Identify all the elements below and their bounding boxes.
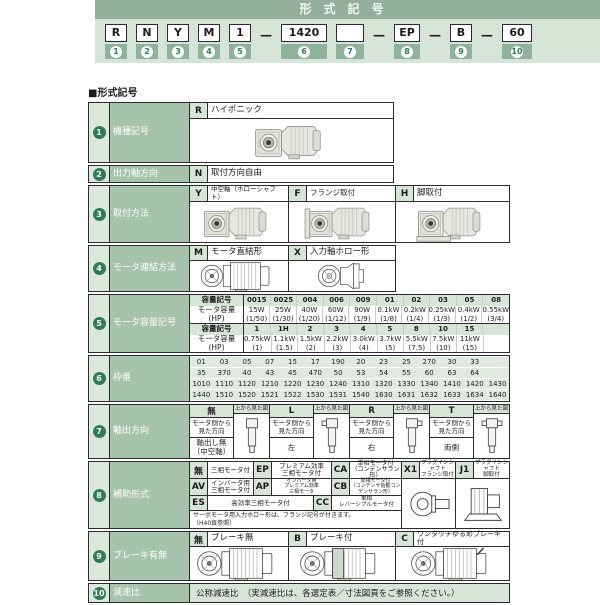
row-number: 5 — [89, 295, 110, 352]
row-reduction-ratio: 10 減速比 公称減速比 （実減速比は、各選定表／寸法図頁をご参照ください。） — [88, 583, 510, 603]
list-cell: 5.5kW (7.5) — [404, 335, 431, 352]
desc-cell: 高効率三相モータ付 — [208, 496, 313, 510]
list-cell — [486, 368, 509, 378]
code-number-badge: 3 — [167, 44, 189, 59]
list-cell: 25W (1/30) — [270, 306, 296, 323]
capacity-header: モータ容量 (HP) — [190, 306, 244, 323]
list-cell: 1510 — [213, 390, 236, 400]
capacity-value-row-1: モータ容量 (HP) 15W (1/50)25W (1/30)40W (1/20… — [190, 306, 509, 323]
code-number-badge: 4 — [198, 44, 220, 59]
code-number-badge: 10 — [502, 44, 532, 59]
code-cell: M — [190, 246, 208, 260]
capacity-symbol-row-1: 容量記号 001500250040060090102030508 — [190, 295, 509, 306]
view-label: モータ側から 見た方向 — [270, 418, 313, 438]
direction-label: 右 — [350, 438, 393, 458]
list-cell: 03 — [213, 357, 236, 367]
list-cell: 11kW (15) — [457, 335, 484, 352]
code-cell: 無 — [190, 405, 233, 418]
row-label: ブレーキ有無 — [110, 532, 190, 580]
code-cell: Y — [190, 186, 208, 201]
list-cell: 4 — [350, 324, 377, 335]
desc-cell: 脚取付 — [414, 186, 509, 201]
frame-row-4: 1440151015201521152215301531154016301631… — [190, 390, 509, 400]
desc-cell: プレミアム効率 三相モータ付 — [272, 462, 331, 478]
code-segment-8: EP 8 — [394, 24, 420, 59]
row-number: 3 — [89, 186, 110, 242]
row-number: 1 — [89, 103, 110, 162]
list-cell: 02 — [404, 295, 431, 306]
list-cell: 1520 — [236, 390, 259, 400]
list-cell: 3.7kW (5) — [378, 335, 405, 352]
connection-option-input-hollow: X 入力軸ホロー形 — [289, 246, 395, 291]
ratio-desc-cell: 公称減速比 （実減速比は、各選定表／寸法図頁をご参照ください。） — [190, 584, 509, 602]
row-motor-connection: 4 モータ連結方法 M モータ直結形 X 入力軸ホロー形 — [88, 245, 396, 292]
list-cell: 1 — [244, 324, 271, 335]
list-cell: 25 — [395, 357, 418, 367]
direction-label: 左 — [270, 438, 313, 458]
mounting-option-flange: F フランジ取付 — [289, 186, 396, 242]
desc-cell: 単相モータ付 （コンデンサラン形） — [350, 462, 401, 478]
list-cell: 1H — [271, 324, 298, 335]
row-label: 機種記号 — [110, 103, 190, 162]
list-cell: 1640 — [486, 390, 509, 400]
list-cell: 1420 — [463, 379, 486, 389]
row-label: 軸出方向 — [110, 405, 190, 458]
list-cell: 0.2kW (1/4) — [402, 306, 428, 323]
desc-cell: プラグインシャフト フランジ取付 — [420, 462, 455, 478]
code-cell: EP — [254, 462, 272, 478]
list-cell: 1632 — [418, 390, 441, 400]
list-cell: 1540 — [349, 390, 372, 400]
list-cell: 1120 — [236, 379, 259, 389]
list-cell: 15 — [457, 324, 484, 335]
desc-cell: インバータ用 プレミアム効率 三相モータ — [272, 479, 331, 495]
list-cell: 3.0kW (4) — [351, 335, 378, 352]
list-cell: 0.25kW (1/3) — [429, 306, 457, 323]
brake-motor-diagram — [299, 547, 385, 580]
code-cell: L — [270, 405, 313, 418]
code-number-badge: 1 — [105, 44, 127, 59]
list-cell: 1521 — [258, 390, 281, 400]
brake-option-with-brake: B ブレーキ付 — [289, 532, 396, 580]
desc-cell: ブレーキ付 — [307, 532, 395, 546]
brake-option-none: 無 ブレーキ無 — [190, 532, 289, 580]
plug-in-shaft-flange-diagram — [402, 479, 456, 528]
shaft-fig-right: 上から見た図 — [394, 405, 430, 458]
list-cell — [484, 335, 510, 352]
code-cell: CB — [332, 479, 350, 495]
desc-cell: 中空軸（ホローシャフト） — [208, 186, 288, 201]
row-frame-number: 6 枠番 0103050715171902023252703033 353704… — [88, 355, 510, 402]
desc-cell: ワンタッチゆるめブレーキ付 — [414, 532, 509, 546]
code-segment-6: 1420 6 — [281, 24, 327, 59]
code-number-badge: 9 — [450, 44, 472, 59]
list-cell: 370 — [213, 368, 236, 378]
code-number-badge: 8 — [394, 44, 420, 59]
list-cell: 55 — [395, 368, 418, 378]
view-label: モータ側から 見た方向 — [190, 418, 233, 438]
code-segment-3: Y 3 — [167, 24, 189, 59]
list-cell: 1410 — [441, 379, 464, 389]
code-cell: R — [350, 405, 393, 418]
frame-row-3: 1010111011201210122012301240131013201330… — [190, 379, 509, 389]
list-cell: 1430 — [486, 379, 509, 389]
row-motor-capacity: 5 モータ容量記号 容量記号 0015002500400600901020305… — [88, 294, 510, 353]
row-number: 7 — [89, 405, 110, 458]
list-cell: 004 — [297, 295, 324, 306]
capacity-symbol-row-2: 容量記号 11H234581015 — [190, 323, 509, 335]
desc-cell: 単相 レバーシブルモータ付 — [332, 496, 401, 510]
list-cell: 1340 — [418, 379, 441, 389]
frame-row-1: 0103050715171902023252703033 — [190, 357, 509, 367]
code-cell: B — [289, 532, 307, 546]
code-number-badge: 7 — [336, 44, 364, 59]
list-cell: 05 — [236, 357, 259, 367]
list-cell: 009 — [350, 295, 377, 306]
list-cell: 1522 — [281, 390, 304, 400]
list-cell: 1220 — [281, 379, 304, 389]
list-cell — [486, 357, 509, 367]
list-cell: 01 — [377, 295, 404, 306]
code-box-frame: 1420 — [281, 24, 327, 42]
list-cell: 1310 — [349, 379, 372, 389]
dash-separator: — — [429, 28, 441, 42]
list-cell: 15 — [281, 357, 304, 367]
list-cell: 270 — [418, 357, 441, 367]
code-number-badge: 2 — [136, 44, 158, 59]
list-cell: 1530 — [304, 390, 327, 400]
list-cell: 03 — [430, 295, 457, 306]
list-cell: 0.4kW (1/2) — [456, 306, 482, 323]
page-title: 形式記号 — [95, 0, 600, 19]
list-cell: 30 — [441, 357, 464, 367]
list-cell: 40W (1/20) — [297, 306, 323, 323]
fig-label: 上から見た図 — [314, 405, 349, 414]
list-cell: 60W (1/12) — [323, 306, 349, 323]
code-box-capacity: 1 — [229, 24, 251, 42]
code-segment-4: M 4 — [198, 24, 220, 59]
list-cell: 33 — [463, 357, 486, 367]
list-cell: 1440 — [190, 390, 213, 400]
list-cell: 23 — [372, 357, 395, 367]
desc-cell: 取付方向自由 — [208, 166, 393, 182]
row-label: 枠番 — [110, 356, 190, 401]
list-cell: 1.5kW (2) — [298, 335, 325, 352]
list-cell: 63 — [441, 368, 464, 378]
list-cell: 0025 — [271, 295, 298, 306]
code-cell: AV — [190, 479, 208, 495]
row-label: 減速比 — [110, 584, 190, 602]
list-cell: 1110 — [213, 379, 236, 389]
brake-motor-none-diagram — [196, 547, 282, 580]
shaft-top-view-diagram — [400, 416, 424, 456]
row-shaft-output-direction: 7 軸出方向 無 モータ側から 見た方向 軸出し無 （中空軸） 上から見た図 L… — [88, 404, 510, 459]
connection-option-direct: M モータ直結形 — [190, 246, 289, 291]
code-box-output-dir: N — [136, 24, 158, 42]
list-cell: 0015 — [244, 295, 271, 306]
desc-cell: プラグインシャフト 脚取付 — [474, 462, 509, 478]
code-cell: 無 — [190, 462, 208, 478]
code-cell: J1 — [456, 462, 474, 478]
shaft-fig-none: 上から見た図 — [234, 405, 270, 458]
list-cell: 17 — [304, 357, 327, 367]
list-cell: 43 — [258, 368, 281, 378]
code-box-connection: M — [198, 24, 220, 42]
brake-option-one-touch-release: C ワンタッチゆるめブレーキ付 — [396, 532, 509, 580]
code-cell: X — [289, 246, 307, 260]
desc-cell: 単相モータ付 （コンデンサ始動コンデンサラン形） — [350, 479, 401, 495]
fig-label: 上から見た図 — [394, 405, 429, 414]
code-cell: ES — [190, 496, 208, 510]
list-cell: 45 — [281, 368, 304, 378]
frame-row-2: 3537040434547050535455606364 — [190, 368, 509, 378]
list-cell: 1630 — [372, 390, 395, 400]
list-cell: 1.1kW (1.5) — [272, 335, 299, 352]
dash-separator: — — [481, 28, 493, 42]
code-cell: X1 — [402, 462, 420, 478]
desc-cell: フランジ取付 — [307, 186, 395, 201]
list-cell: 40 — [236, 368, 259, 378]
list-cell: 1320 — [372, 379, 395, 389]
code-cell: AP — [254, 479, 272, 495]
desc-cell: インバータ用 三相モータ付 — [208, 479, 253, 495]
direction-label: 軸出し無 （中空軸） — [190, 438, 233, 458]
row-mounting-method: 3 取付方法 Y 中空軸（ホローシャフト） F フランジ取付 — [88, 185, 510, 243]
shaft-top-view-diagram — [480, 416, 504, 456]
shaft-option-none: 無 モータ側から 見た方向 軸出し無 （中空軸） — [190, 405, 234, 458]
motor-direct-diagram — [195, 261, 283, 291]
list-cell: 1230 — [304, 379, 327, 389]
list-cell: 54 — [372, 368, 395, 378]
list-cell: 1010 — [190, 379, 213, 389]
code-box-brake: B — [450, 24, 472, 42]
row-number: 6 — [89, 356, 110, 401]
list-cell: 1631 — [395, 390, 418, 400]
flange-gearmotor-photo — [302, 202, 382, 242]
foot-gearmotor-photo — [413, 202, 493, 242]
list-cell: 60 — [418, 368, 441, 378]
row-number: 2 — [89, 166, 110, 182]
code-segment-7: 7 — [336, 24, 364, 59]
list-cell: 07 — [258, 357, 281, 367]
row-label: モータ容量記号 — [110, 295, 190, 352]
one-touch-release-brake-motor-diagram — [410, 547, 496, 580]
code-cell: T — [430, 405, 473, 418]
list-cell: 5 — [377, 324, 404, 335]
code-cell: R — [190, 103, 208, 118]
code-cell: N — [190, 166, 208, 182]
row-auxiliary-type: 8 補助形式 無三相モータ付 EPプレミアム効率 三相モータ付 CA単相モータ付… — [88, 461, 510, 529]
list-cell: 006 — [324, 295, 351, 306]
code-box-ratio: 60 — [502, 24, 532, 42]
code-segment-10: 60 10 — [502, 24, 532, 59]
row-number: 10 — [89, 584, 110, 602]
shaft-top-view-diagram — [240, 416, 264, 456]
mounting-option-foot: H 脚取付 — [396, 186, 509, 242]
code-box-aux: EP — [394, 24, 420, 42]
list-cell: 1240 — [327, 379, 350, 389]
list-cell: 2 — [297, 324, 324, 335]
list-cell: 20 — [349, 357, 372, 367]
code-cell: F — [289, 186, 307, 201]
list-cell: 190 — [327, 357, 350, 367]
shaft-option-left: L モータ側から 見た方向 左 — [270, 405, 314, 458]
code-cell: CA — [332, 462, 350, 478]
row-number: 4 — [89, 246, 110, 291]
dash-separator: — — [260, 28, 272, 42]
code-segment-1: R 1 — [105, 24, 127, 59]
list-cell: 10 — [430, 324, 457, 335]
direction-label: 両側 — [430, 438, 473, 458]
row-label: モータ連結方法 — [110, 246, 190, 291]
gearmotor-photo — [250, 120, 334, 162]
gearmotor-photo — [199, 202, 279, 242]
fig-label: 上から見た図 — [234, 405, 269, 414]
mounting-option-hollow-shaft: Y 中空軸（ホローシャフト） — [190, 186, 289, 242]
dash-separator: — — [373, 28, 385, 42]
fig-label: 上から見た図 — [474, 405, 509, 414]
model-code-band: R 1 N 2 Y 3 M 4 1 5 — 1420 6 7 — EP 8 — … — [95, 19, 600, 63]
section-heading: ■形式記号 — [88, 84, 512, 99]
row-type-symbol: 1 機種記号 R ハイポニック — [88, 102, 394, 163]
shaft-option-both: T モータ側から 見た方向 両側 — [430, 405, 474, 458]
list-cell: 3 — [324, 324, 351, 335]
list-cell: 90W (1/9) — [349, 306, 375, 323]
list-cell: 0.75kW (1) — [244, 335, 272, 352]
list-cell: 1210 — [258, 379, 281, 389]
row-label: 補助形式 — [110, 462, 190, 528]
row-label: 出力軸方向 — [110, 166, 190, 182]
code-cell: 無 — [190, 532, 208, 546]
code-box-shaft-dir — [336, 24, 364, 42]
list-cell: 0.55kW (3/4) — [482, 306, 509, 323]
capacity-header: モータ容量 (HP) — [190, 335, 244, 352]
list-cell: 05 — [457, 295, 484, 306]
desc-cell: 入力軸ホロー形 — [307, 246, 395, 260]
code-box-type: R — [105, 24, 127, 42]
desc-cell: ブレーキ無 — [208, 532, 288, 546]
row-brake: 9 ブレーキ有無 無 ブレーキ無 B ブレーキ付 — [88, 531, 510, 581]
list-cell: 53 — [349, 368, 372, 378]
code-segment-9: B 9 — [450, 24, 472, 59]
capacity-value-row-2: モータ容量 (HP) 0.75kW (1)1.1kW (1.5)1.5kW (2… — [190, 335, 509, 352]
list-cell: 35 — [190, 368, 213, 378]
code-cell: CC — [314, 496, 332, 510]
row-number: 8 — [89, 462, 110, 528]
list-cell: 64 — [463, 368, 486, 378]
list-cell: 1330 — [395, 379, 418, 389]
code-box-mounting: Y — [167, 24, 189, 42]
list-cell: 08 — [483, 295, 509, 306]
list-cell: 1633 — [441, 390, 464, 400]
input-hollow-diagram — [312, 261, 372, 291]
list-cell: 01 — [190, 357, 213, 367]
list-cell: 1531 — [327, 390, 350, 400]
list-cell: 470 — [304, 368, 327, 378]
list-cell: 1634 — [463, 390, 486, 400]
list-cell: 7.5kW (10) — [431, 335, 458, 352]
list-cell: 2.2kW (3) — [325, 335, 352, 352]
desc-cell: ハイポニック — [208, 103, 393, 118]
view-label: モータ側から 見た方向 — [350, 418, 393, 438]
code-cell: C — [396, 532, 414, 546]
row-output-shaft-direction: 2 出力軸方向 N 取付方向自由 — [88, 165, 394, 183]
list-cell: 50 — [327, 368, 350, 378]
code-cell: H — [396, 186, 414, 201]
aux-note: サーボモータ用入力ホロー形は、フランジ記号が付きます。 （H40頁参照） — [190, 510, 401, 528]
code-number-badge: 6 — [281, 44, 327, 59]
shaft-option-right: R モータ側から 見た方向 右 — [350, 405, 394, 458]
shaft-fig-both: 上から見た図 — [474, 405, 509, 458]
desc-cell: 三相モータ付 — [208, 462, 253, 478]
code-segment-2: N 2 — [136, 24, 158, 59]
desc-cell: モータ直結形 — [208, 246, 288, 260]
list-cell: 8 — [404, 324, 431, 335]
row-label: 取付方法 — [110, 186, 190, 242]
shaft-fig-left: 上から見た図 — [314, 405, 350, 458]
shaft-top-view-diagram — [320, 416, 344, 456]
list-cell — [483, 324, 509, 335]
list-cell: 0.1kW (1/8) — [376, 306, 402, 323]
code-segment-5: 1 5 — [229, 24, 251, 59]
row-number: 9 — [89, 532, 110, 580]
list-cell: 15W (1/50) — [244, 306, 270, 323]
view-label: モータ側から 見た方向 — [430, 418, 473, 438]
model-code-table: ■形式記号 1 機種記号 R ハイポニック 2 出力軸方向 N 取付方向自由 3… — [88, 84, 512, 605]
plug-in-shaft-foot-diagram — [456, 479, 509, 528]
code-number-badge: 5 — [229, 44, 251, 59]
